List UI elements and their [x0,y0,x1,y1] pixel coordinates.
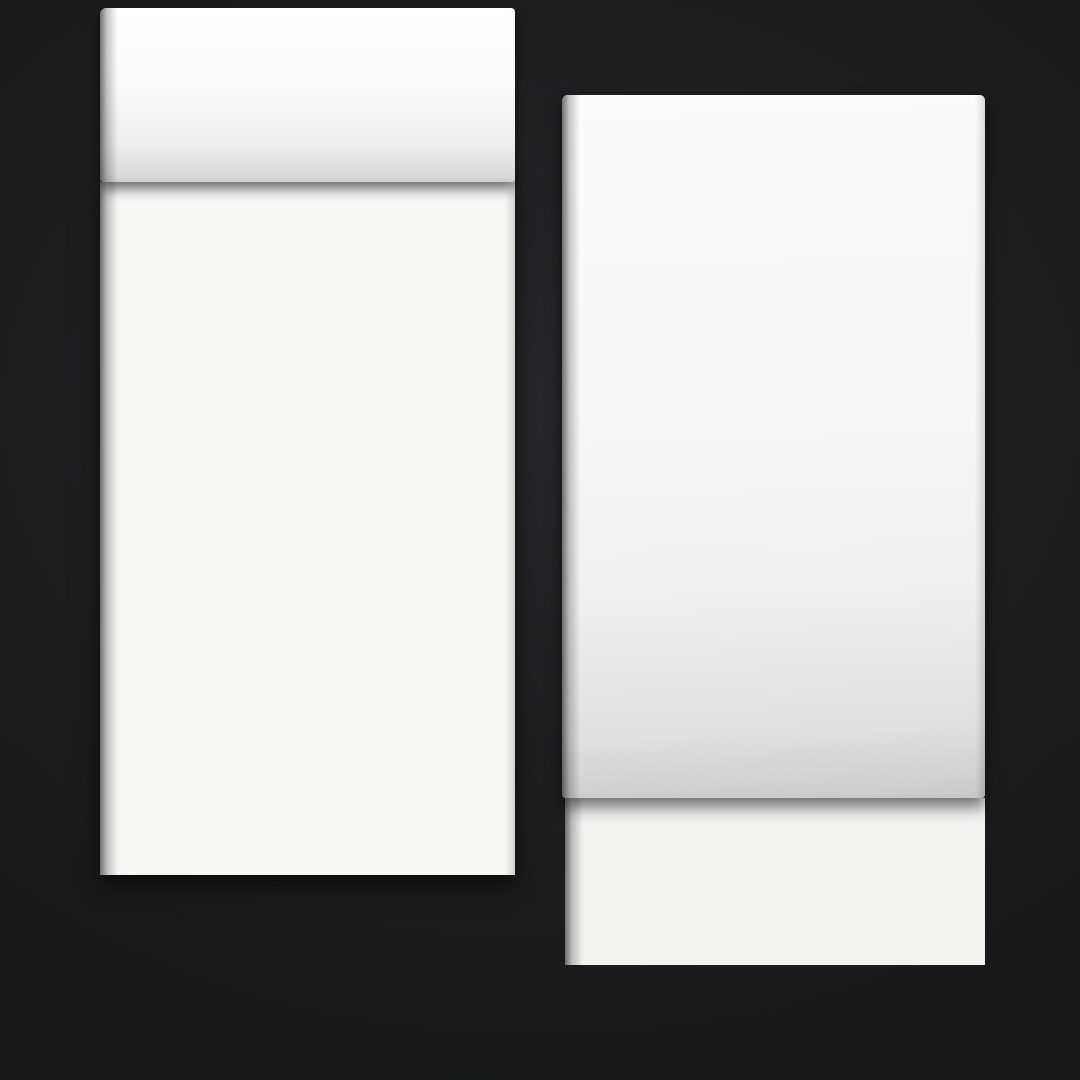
hole-map-page [100,180,515,875]
blank-page-flap [100,8,515,182]
hole-map-copy [568,798,983,965]
hole-map [100,180,515,875]
page-spine-shadow [100,8,118,182]
yardage-book-photo [0,0,1080,1080]
yardage-banner [0,965,1080,1080]
green-detail-chart [562,95,985,798]
next-page-preview [565,798,985,965]
green-detail-page [562,95,985,798]
